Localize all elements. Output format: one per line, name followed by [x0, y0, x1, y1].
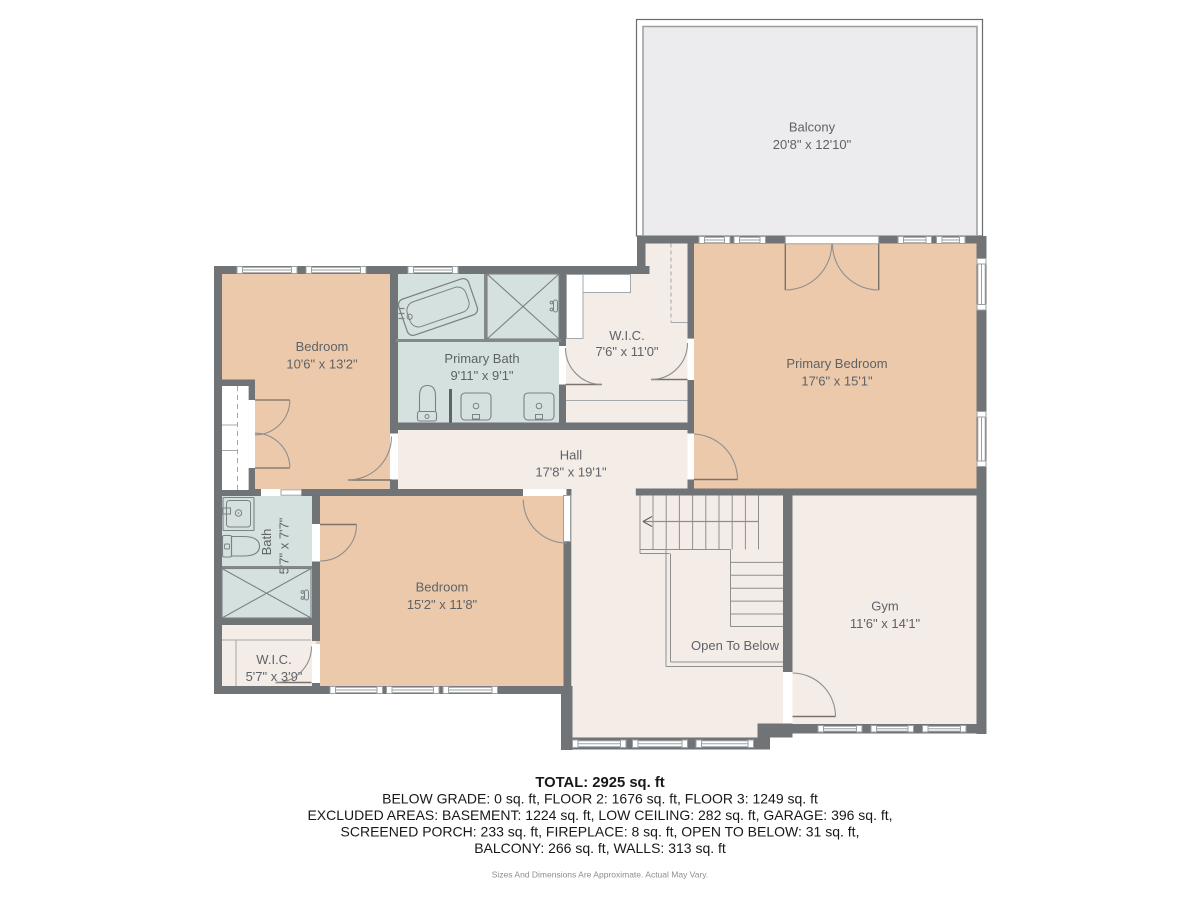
svg-text:BELOW GRADE: 0 sq. ft, FLOOR 2: BELOW GRADE: 0 sq. ft, FLOOR 2: 1676 sq.… [382, 791, 818, 807]
svg-text:Bedroom: Bedroom [416, 580, 469, 595]
svg-text:9'11" x 9'1": 9'11" x 9'1" [450, 368, 513, 383]
svg-text:7'6" x 11'0": 7'6" x 11'0" [595, 344, 658, 359]
svg-text:Sizes And Dimensions Are Appro: Sizes And Dimensions Are Approximate. Ac… [492, 870, 709, 880]
svg-text:TOTAL: 2925 sq. ft: TOTAL: 2925 sq. ft [535, 775, 664, 791]
svg-text:5'7" x 7'7": 5'7" x 7'7" [277, 517, 292, 574]
svg-text:Bath: Bath [259, 529, 274, 556]
svg-text:Hall: Hall [560, 448, 583, 463]
svg-text:SCREENED PORCH: 233 sq. ft, FI: SCREENED PORCH: 233 sq. ft, FIREPLACE: 8… [341, 824, 860, 840]
svg-text:15'2" x 11'8": 15'2" x 11'8" [407, 597, 478, 612]
svg-text:BALCONY: 266 sq. ft, WALLS: 31: BALCONY: 266 sq. ft, WALLS: 313 sq. ft [474, 840, 726, 856]
svg-text:Open To Below: Open To Below [691, 638, 780, 653]
svg-text:10'6" x 13'2": 10'6" x 13'2" [286, 357, 358, 372]
svg-text:17'6" x 15'1": 17'6" x 15'1" [801, 374, 873, 389]
svg-text:Balcony: Balcony [789, 120, 836, 135]
svg-text:W.I.C.: W.I.C. [609, 328, 644, 343]
svg-text:Primary Bedroom: Primary Bedroom [786, 356, 887, 371]
svg-text:Primary Bath: Primary Bath [444, 351, 519, 366]
svg-text:Gym: Gym [871, 599, 898, 614]
svg-text:17'8" x 19'1": 17'8" x 19'1" [535, 465, 607, 480]
svg-text:EXCLUDED AREAS: BASEMENT: 1224: EXCLUDED AREAS: BASEMENT: 1224 sq. ft, L… [307, 807, 892, 823]
svg-text:5'7" x 3'9": 5'7" x 3'9" [246, 669, 303, 684]
svg-text:W.I.C.: W.I.C. [256, 652, 291, 667]
svg-text:Bedroom: Bedroom [296, 339, 349, 354]
svg-text:11'6" x 14'1": 11'6" x 14'1" [850, 616, 921, 631]
svg-text:20'8" x 12'10": 20'8" x 12'10" [773, 137, 852, 152]
